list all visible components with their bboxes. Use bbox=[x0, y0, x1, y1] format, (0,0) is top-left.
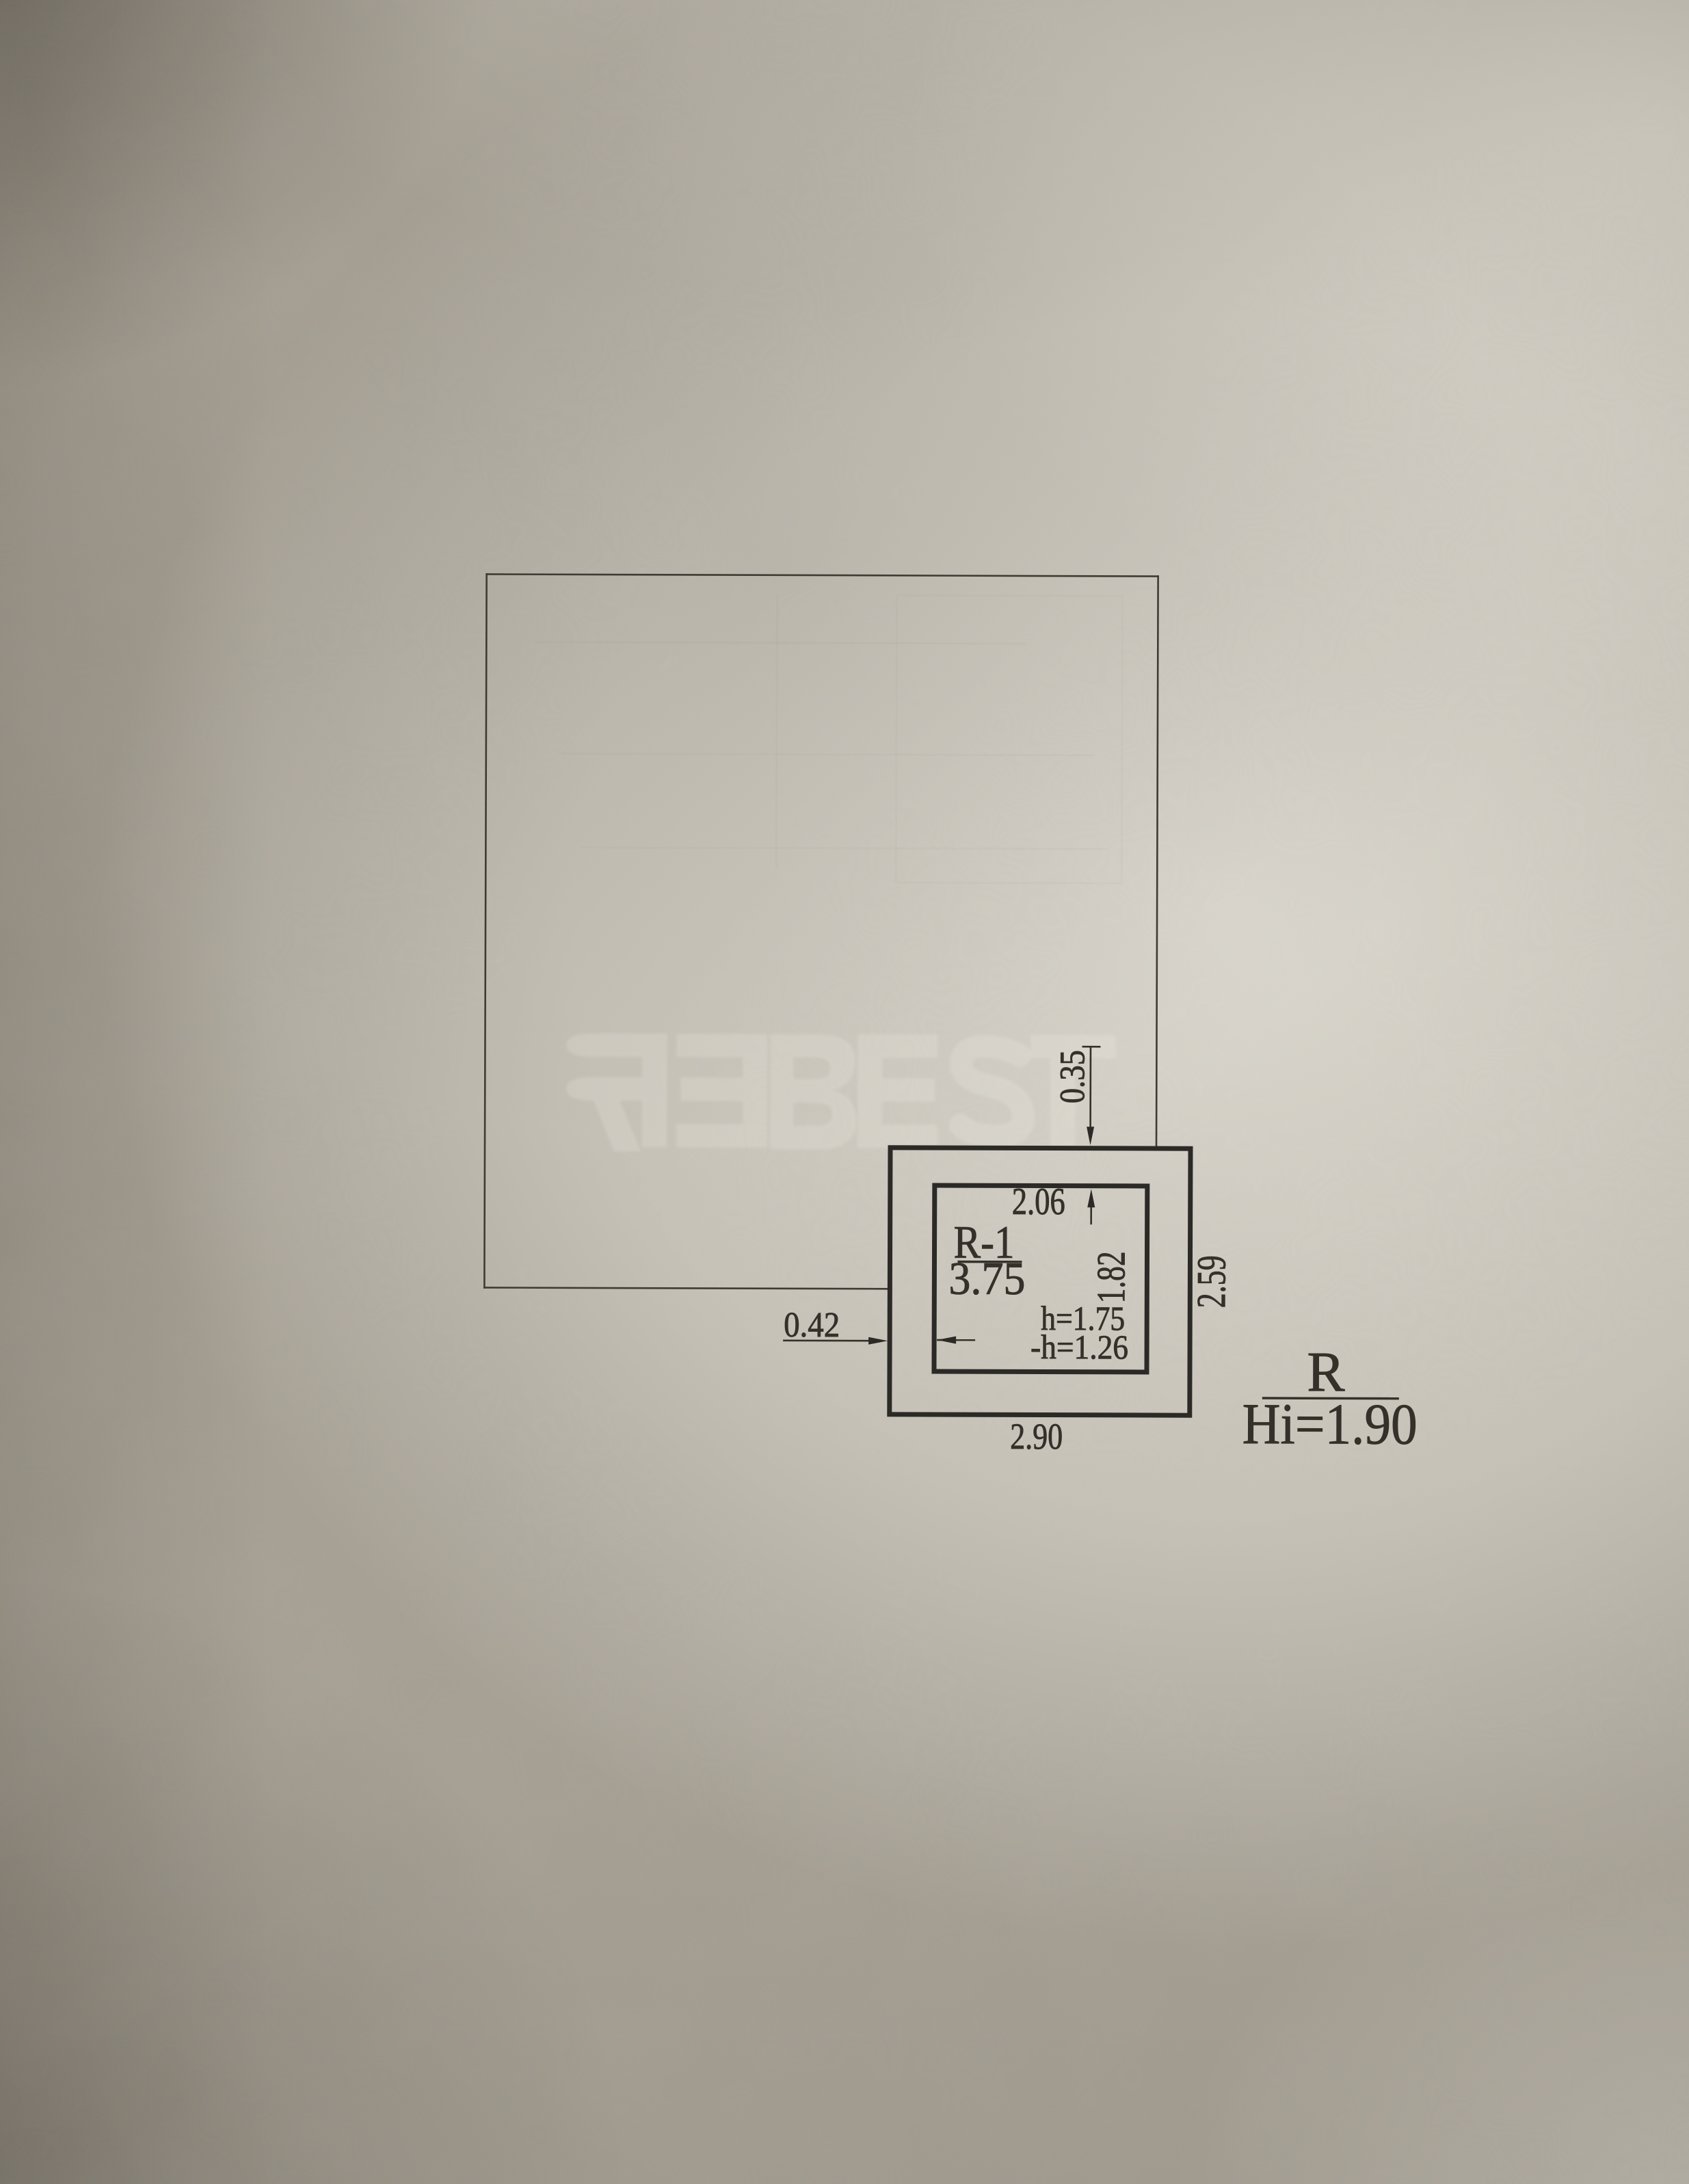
svg-text:2.59: 2.59 bbox=[1188, 1255, 1234, 1308]
svg-text:Hi=1.90: Hi=1.90 bbox=[1242, 1392, 1418, 1457]
svg-text:3.75: 3.75 bbox=[948, 1252, 1025, 1304]
svg-text:2.90: 2.90 bbox=[1010, 1416, 1063, 1457]
svg-text:-h=1.26: -h=1.26 bbox=[1030, 1328, 1128, 1366]
svg-text:0.35: 0.35 bbox=[1053, 1050, 1092, 1103]
svg-text:1.82: 1.82 bbox=[1088, 1251, 1133, 1303]
svg-text:0.42: 0.42 bbox=[784, 1306, 840, 1345]
svg-text:2.06: 2.06 bbox=[1012, 1181, 1065, 1223]
